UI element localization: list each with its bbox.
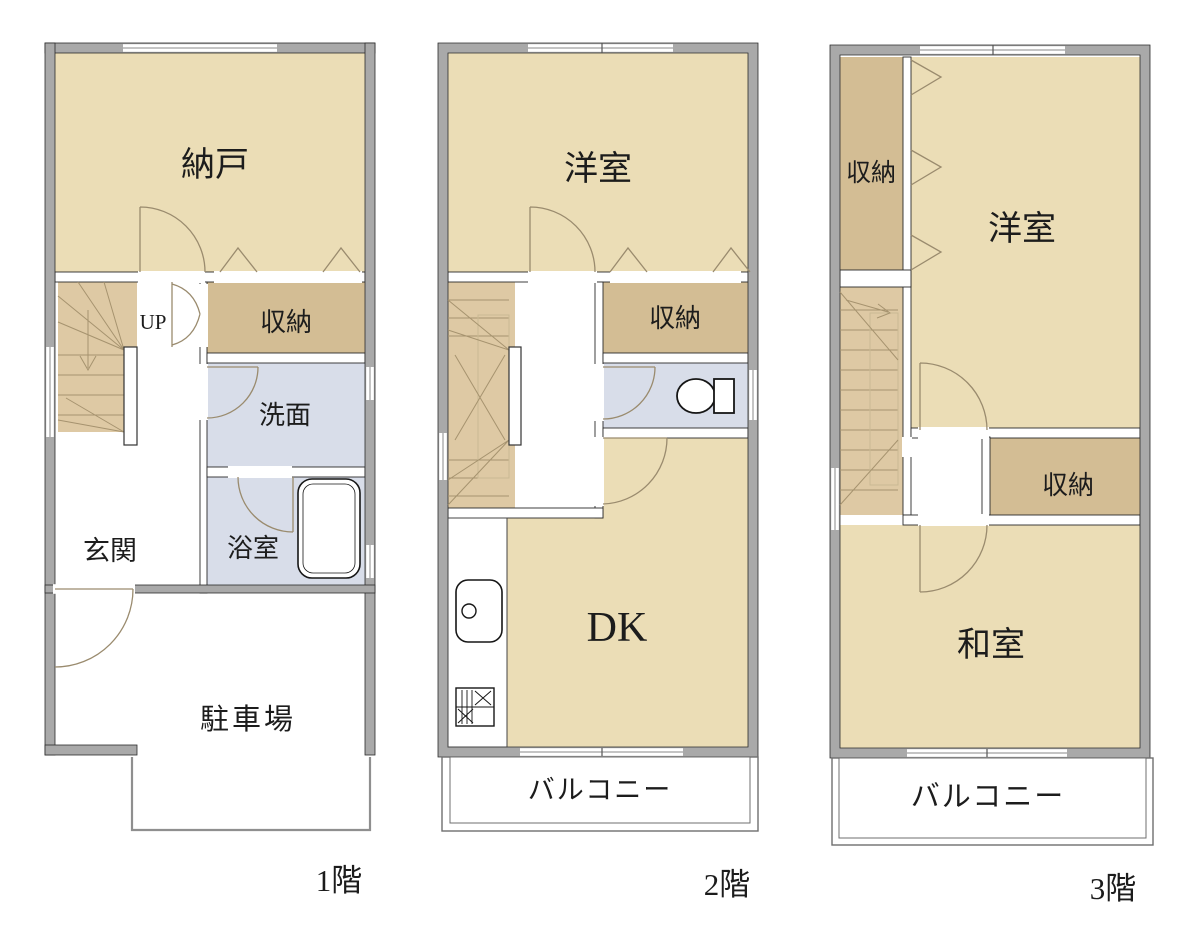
toilet-icon (677, 379, 734, 413)
label-balcony-2f: バルコニー (528, 775, 672, 805)
room-dk-upper (603, 438, 748, 518)
label-western-2f: 洋室 (564, 150, 632, 188)
label-closet-3f-upper: 収納 (846, 159, 896, 187)
stove-icon (456, 688, 494, 726)
floor-plan-svg: 納戸 UP 収納 洗面 浴室 玄関 駐車場 1階 (0, 0, 1200, 941)
label-up: UP (140, 310, 167, 334)
label-closet-3f-mid: 収納 (1042, 471, 1094, 500)
label-dk: DK (587, 605, 648, 651)
label-washroom: 洗面 (259, 401, 311, 430)
stair-rail-2f (509, 347, 521, 445)
parking-outline (132, 757, 370, 830)
label-closet-1f: 収納 (260, 308, 312, 337)
floor-label-3f: 3階 (1090, 871, 1137, 906)
floor-3-plan: 収納 洋室 収納 和室 バルコニー 3階 (830, 45, 1153, 906)
floor-2-plan: 洋室 収納 DK バルコニー 2階 (438, 43, 758, 902)
floor-1-plan: 納戸 UP 収納 洗面 浴室 玄関 駐車場 1階 (45, 43, 375, 898)
kitchen-sink-icon (456, 580, 502, 642)
label-balcony-3f: バルコニー (911, 781, 1065, 813)
bathtub-icon (298, 479, 360, 578)
floor-plan-canvas: 納戸 UP 収納 洗面 浴室 玄関 駐車場 1階 (0, 0, 1200, 941)
door-arc-hall-1f (172, 282, 200, 347)
label-japanese-room: 和室 (957, 626, 1025, 664)
kitchen-counter (448, 518, 507, 747)
stair-rail-1f (124, 347, 137, 445)
door-arc-entrance (55, 589, 133, 667)
label-entrance: 玄関 (83, 536, 137, 566)
stairs-area-3f (840, 287, 903, 515)
label-bathroom: 浴室 (227, 534, 279, 563)
floor-label-1f: 1階 (316, 863, 363, 898)
floor-label-2f: 2階 (704, 867, 751, 902)
label-storage-large: 納戸 (181, 146, 249, 184)
wall-openings-3f (902, 427, 989, 526)
label-western-3f: 洋室 (988, 210, 1056, 248)
label-parking: 駐車場 (200, 703, 296, 736)
label-closet-2f: 収納 (649, 304, 701, 333)
